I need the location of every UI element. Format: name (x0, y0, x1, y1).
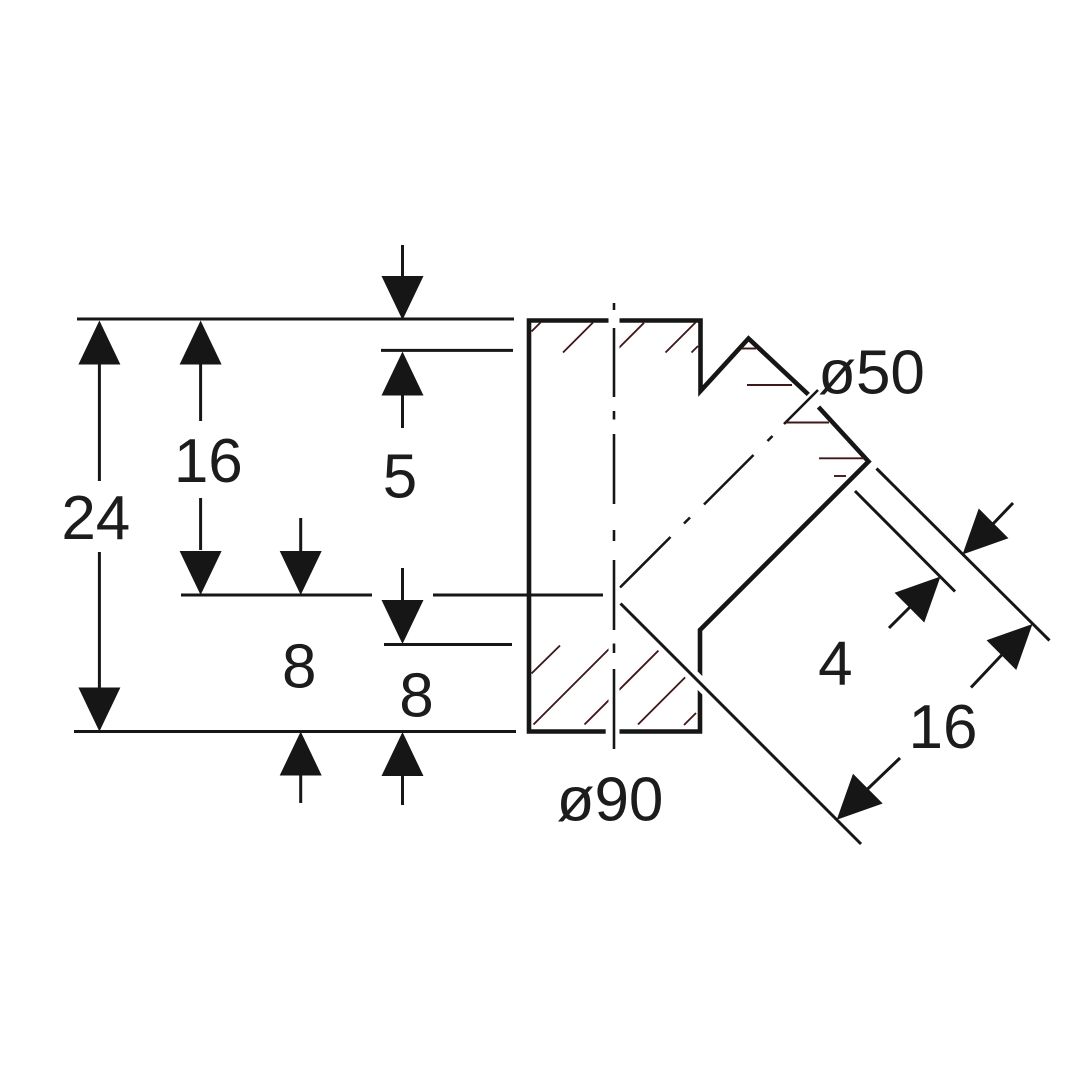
svg-text:24: 24 (61, 484, 130, 553)
svg-text:5: 5 (383, 442, 417, 511)
svg-text:8: 8 (399, 662, 433, 731)
svg-text:ø90: ø90 (557, 766, 664, 835)
svg-text:8: 8 (282, 632, 316, 701)
svg-text:4: 4 (818, 630, 852, 699)
svg-text:16: 16 (909, 693, 978, 762)
svg-text:16: 16 (174, 427, 243, 496)
svg-text:ø50: ø50 (818, 339, 925, 408)
